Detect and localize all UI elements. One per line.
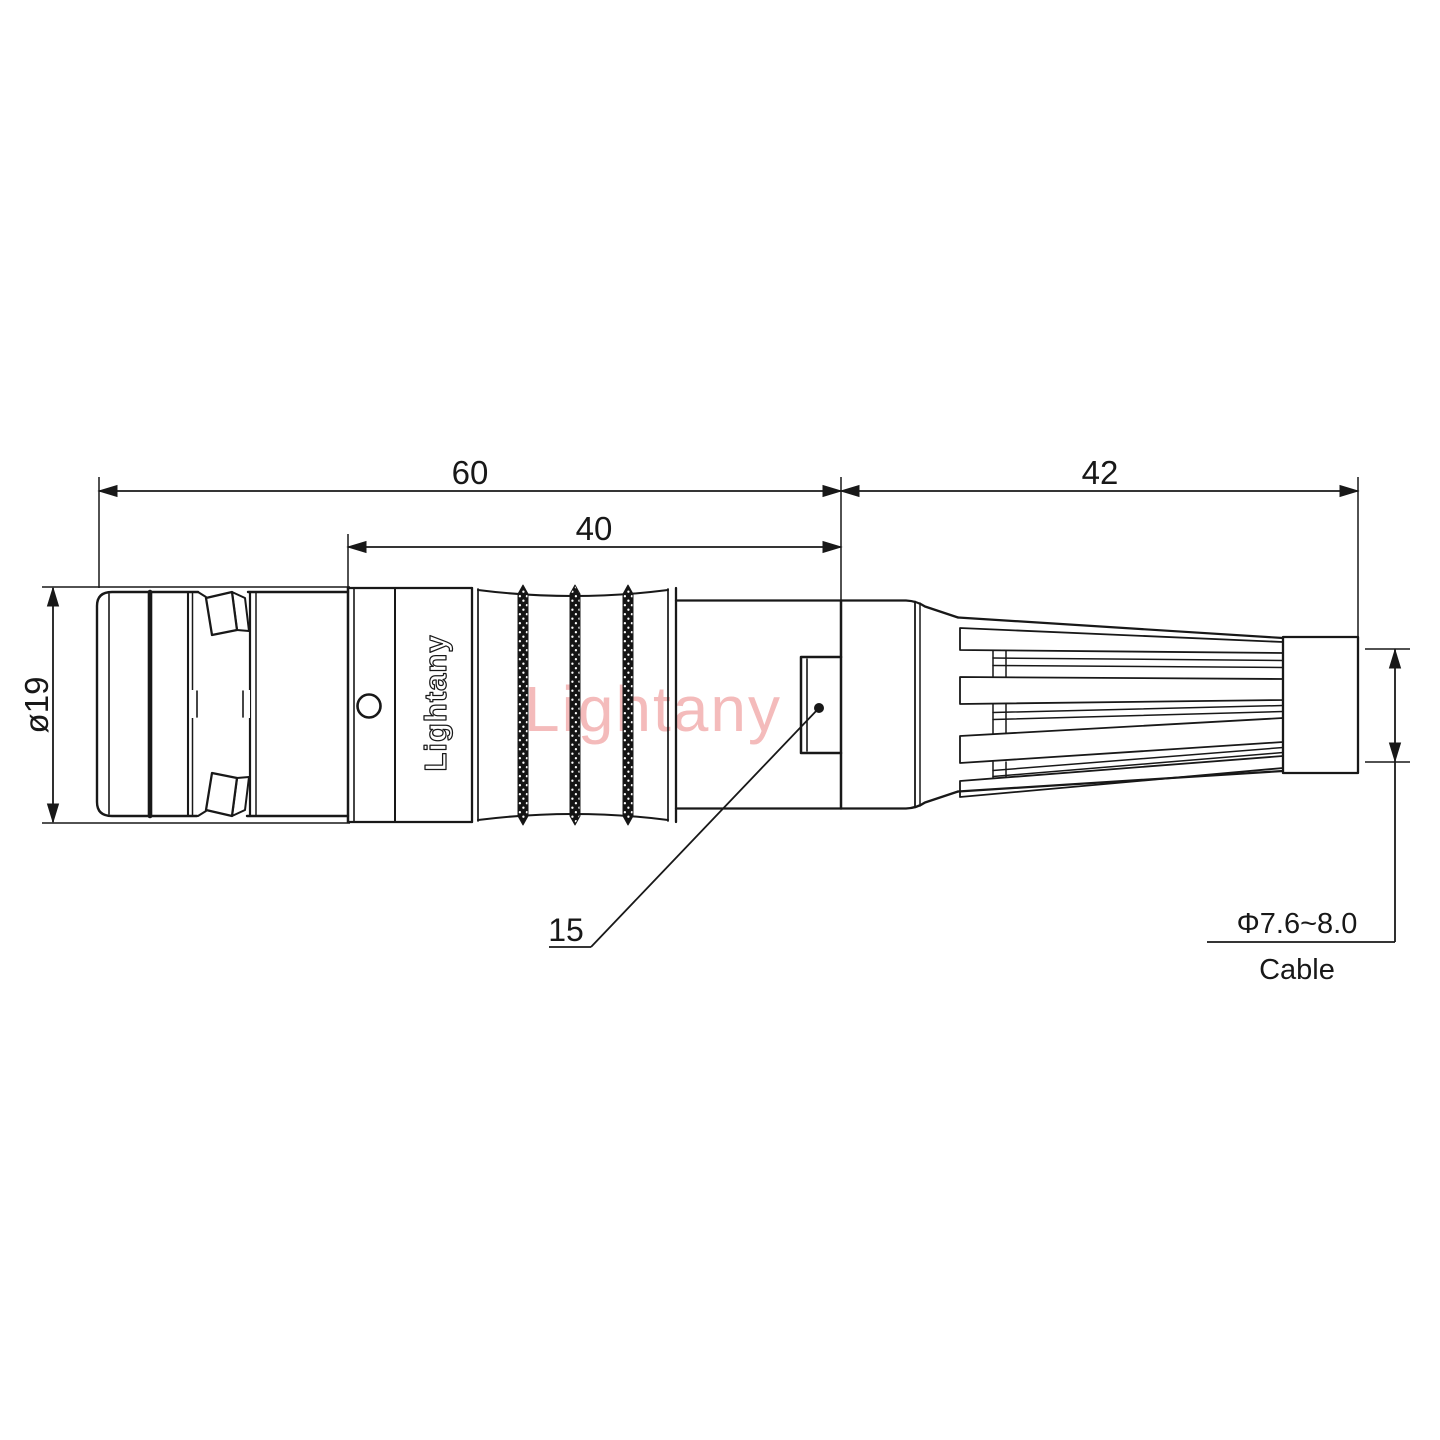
knurl-band (518, 585, 528, 825)
ring-hole (358, 695, 381, 718)
knurl-band (570, 585, 580, 825)
dim-dia19-label: ø19 (18, 677, 55, 734)
leader-dot (814, 703, 824, 713)
watermark-text: Lightany (524, 673, 782, 745)
body-logo-text: Lightany (418, 634, 453, 771)
dim-42-label: 42 (1082, 454, 1119, 491)
knurl-band (623, 585, 633, 825)
cable-diameter-label: Φ7.6~8.0 (1237, 908, 1358, 940)
drawing-svg: Lightany (0, 0, 1440, 1440)
cable-label: Cable (1259, 954, 1335, 986)
connector-technical-drawing: Lightany (0, 0, 1440, 1440)
dim-40-label: 40 (576, 510, 613, 547)
key-window (190, 690, 250, 718)
leader-15-label: 15 (548, 912, 584, 948)
dim-60-label: 60 (452, 454, 489, 491)
boot-fin (960, 677, 1283, 704)
